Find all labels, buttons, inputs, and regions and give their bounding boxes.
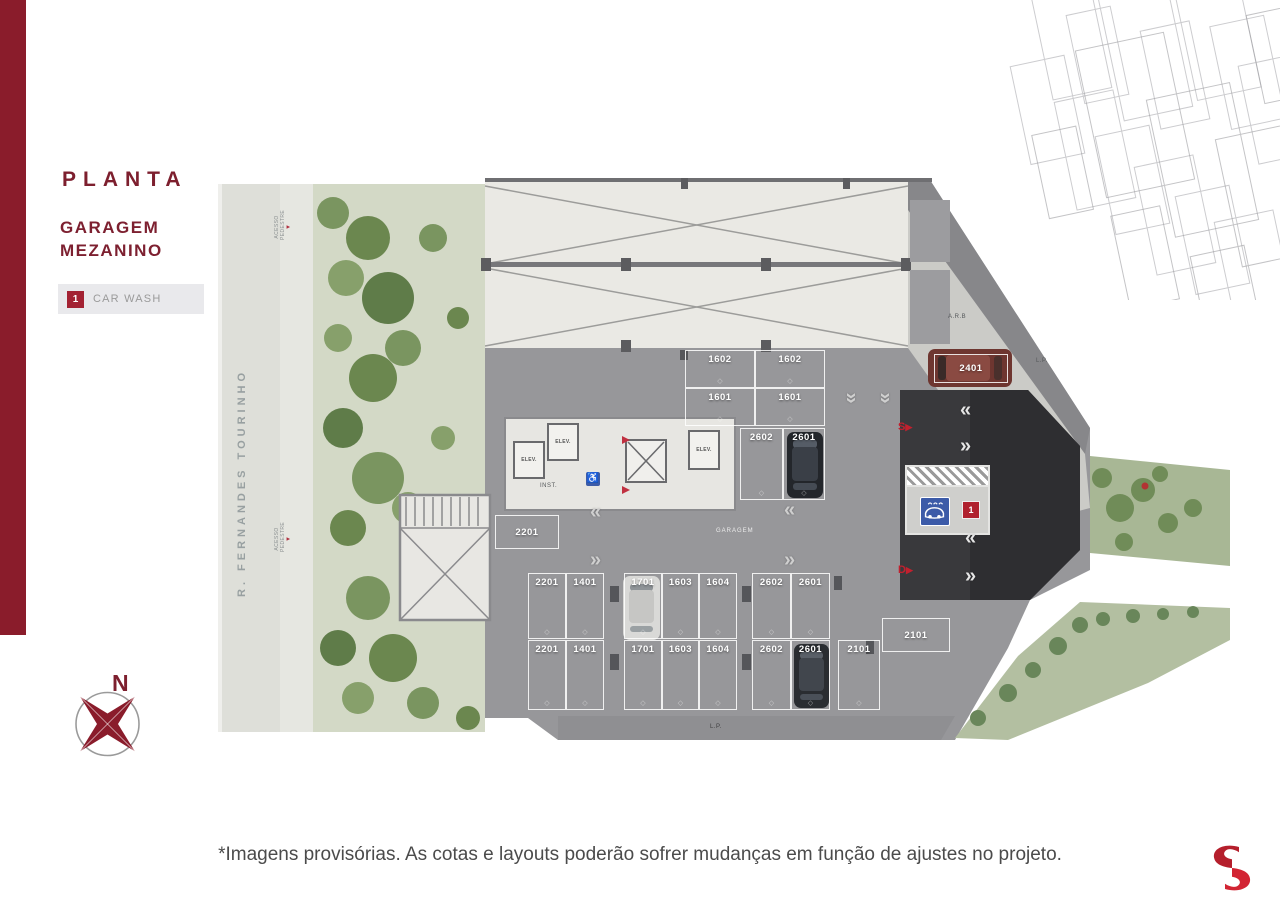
legend-number-tile: 1 [67, 291, 84, 308]
garage-area-label: GARAGEM [716, 528, 754, 534]
subtitle-line-1: GARAGEM [60, 216, 163, 239]
access-arrow-icon: ▼ [286, 210, 292, 244]
car-wash-number-tile: 1 [962, 501, 980, 519]
ramp-up-marker: S▶ [898, 421, 912, 433]
elevator: ELEV. [547, 423, 579, 461]
parking-spot: 1603 [662, 640, 699, 710]
parking-spot: 1602 [685, 350, 755, 388]
hatched-canopy [907, 467, 988, 487]
access-arrow-icon: ▼ [286, 522, 292, 556]
parking-spot: 2601 [783, 428, 825, 500]
property-line-label-bottom: L.P. [710, 724, 722, 730]
disclaimer-text: *Imagens provisórias. As cotas e layouts… [0, 844, 1280, 866]
brand-logo [1203, 840, 1261, 896]
property-line-label-right: L.P. [1036, 358, 1048, 364]
page-subtitle: GARAGEM MEZANINO [60, 216, 163, 262]
parking-spot: 1602 [755, 350, 825, 388]
parking-spot: 1604 [699, 640, 737, 710]
ramp-down-marker: D▶ [898, 564, 913, 576]
parking-spot: 2201 [528, 640, 566, 710]
parking-spot: 1601 [755, 388, 825, 426]
floor-plan: R. FERNANDES TOURINHO ACESSO PEDESTRE ▼ … [218, 178, 1235, 748]
legend-label: CAR WASH [93, 293, 161, 305]
parking-spot: 2201 [495, 515, 559, 549]
chevron-left-icon: « [590, 502, 601, 522]
compass-rose [55, 668, 160, 780]
page-title: PLANTA [62, 168, 188, 192]
chevron-right-icon: » [590, 550, 601, 570]
parking-spot: 1701 [624, 573, 662, 639]
chevron-down-icon: » [876, 392, 896, 403]
chevron-left-icon: « [965, 528, 976, 548]
parking-spot: 1604 [699, 573, 737, 639]
parking-spot: 2201 [528, 573, 566, 639]
chevron-right-icon: » [965, 566, 976, 586]
street-name: R. FERNANDES TOURINHO [222, 298, 262, 668]
pedestrian-access-top: ACESSO PEDESTRE ▼ [274, 210, 292, 244]
chevron-right-icon: » [960, 436, 971, 456]
parking-spot: 1603 [662, 573, 699, 639]
parking-spot: 1401 [566, 640, 604, 710]
parking-spot: 2602 [740, 428, 783, 500]
chevron-right-icon: » [784, 550, 795, 570]
inst-room-label: INST. [540, 483, 557, 489]
arrow-right-icon: ▶ [905, 422, 912, 432]
parking-spot: 2101 [838, 640, 880, 710]
car-wash-station: 1 [905, 465, 990, 535]
elevator: ELEV. [513, 441, 545, 479]
accessibility-icon: ♿ [586, 472, 600, 486]
parking-spot: 1601 [685, 388, 755, 426]
chevron-left-icon: « [960, 400, 971, 420]
arb-zone-label: A.R.B [948, 314, 966, 320]
pedestrian-access-bottom: ACESSO PEDESTRE ▼ [274, 522, 292, 556]
parking-spot: 1401 [566, 573, 604, 639]
arrow-right-icon: ▶ [906, 565, 913, 575]
parking-spot: 2401 [934, 354, 1008, 383]
parking-spot: 2101 [882, 618, 950, 652]
parking-spot: 1701 [624, 640, 662, 710]
brand-red-bar [0, 0, 26, 635]
compass-north-label: N [112, 670, 129, 697]
parking-spot: 2601 [791, 640, 830, 710]
elevator: ELEV. [688, 430, 720, 470]
parking-spot: 2602 [752, 573, 791, 639]
chevron-left-icon: « [784, 500, 795, 520]
parking-spot: 2602 [752, 640, 791, 710]
legend-car-wash: 1 CAR WASH [58, 284, 204, 314]
car-wash-sign-icon [920, 497, 950, 526]
parking-spot: 2601 [791, 573, 830, 639]
subtitle-line-2: MEZANINO [60, 239, 163, 262]
chevron-down-icon: » [842, 392, 862, 403]
